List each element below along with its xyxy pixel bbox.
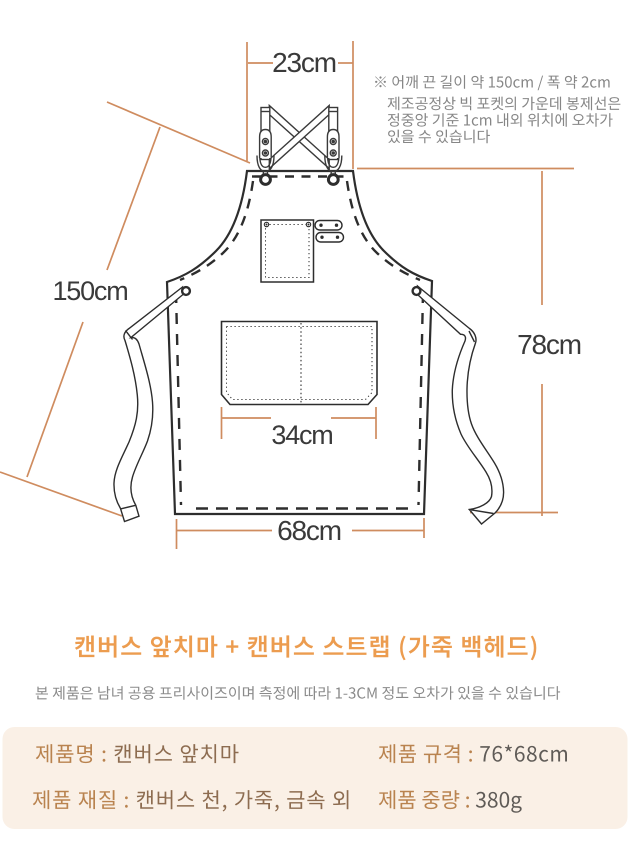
- svg-text:23cm: 23cm: [272, 47, 336, 78]
- svg-text:34cm: 34cm: [271, 420, 332, 450]
- svg-text:68cm: 68cm: [277, 515, 341, 546]
- svg-text:78cm: 78cm: [517, 329, 581, 360]
- svg-text:150cm: 150cm: [52, 276, 127, 306]
